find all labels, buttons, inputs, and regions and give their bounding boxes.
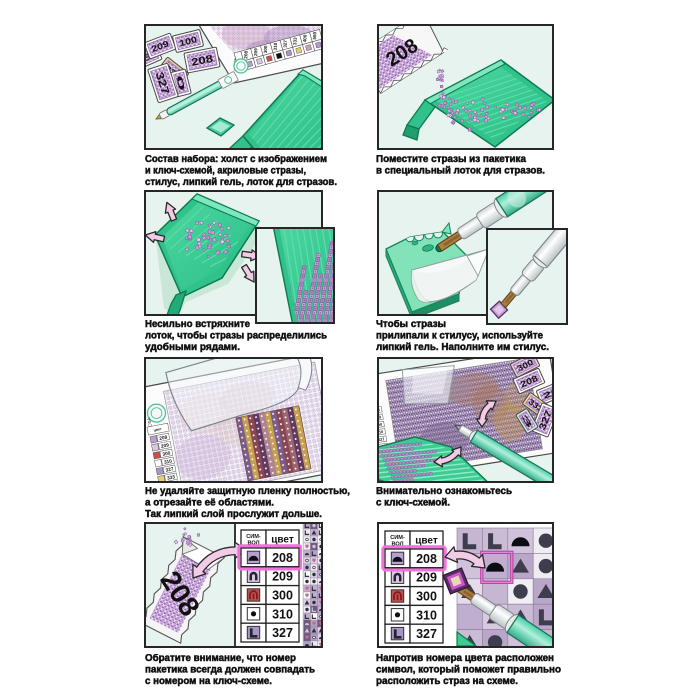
svg-text:Поместите стразы из пакетика: Поместите стразы из пакетика [376,155,527,165]
svg-text:символ, который поможет правил: символ, который поможет правильно [376,664,561,675]
svg-text:300: 300 [416,590,437,604]
svg-text:Обратите внимание, что номер: Обратите внимание, что номер [145,654,296,664]
svg-text:208: 208 [416,552,437,566]
svg-text:300: 300 [263,45,268,53]
svg-text:стилус, липкий гель, лоток для: стилус, липкий гель, лоток для стразов. [145,177,337,188]
svg-text:с номером на ключ-схеме.: с номером на ключ-схеме. [145,676,272,687]
svg-text:лоток, чтобы стразы распредели: лоток, чтобы стразы распределились [145,331,327,342]
svg-text:СИМ-: СИМ- [390,535,405,541]
svg-text:400: 400 [302,34,307,42]
svg-text:с ключ-схемой.: с ключ-схемой. [376,498,450,509]
svg-text:209: 209 [416,571,437,585]
svg-text:цвет: цвет [271,534,294,545]
svg-text:Состав набора: холст с изображ: Состав набора: холст с изображением [145,155,327,165]
svg-text:300: 300 [272,589,293,603]
svg-text:310: 310 [273,42,278,50]
svg-text:Не удаляйте защитную пленку по: Не удаляйте защитную пленку полностью, [145,487,350,497]
svg-text:прилипали к стилусу, используй: прилипали к стилусу, используйте [376,331,544,342]
svg-text:208: 208 [243,50,248,58]
svg-text:СИМ-: СИМ- [246,534,261,540]
svg-text:пакетика всегда должен совпада: пакетика всегда должен совпадать [145,664,315,675]
svg-text:310: 310 [272,607,293,621]
svg-text:Чтобы стразы: Чтобы стразы [376,320,446,330]
svg-text:209: 209 [272,570,293,584]
svg-text:550: 550 [312,31,317,39]
svg-text:в специальный лоток для стразо: в специальный лоток для стразов. [376,165,545,176]
svg-text:липкий гель. Наполните им стил: липкий гель. Наполните им стилус. [376,342,549,353]
svg-text:и ключ-схемой, акриловые страз: и ключ-схемой, акриловые стразы, [145,165,306,176]
svg-text:а отрезайте её областями.: а отрезайте её областями. [145,498,274,509]
svg-text:Внимательно ознакомьтесь: Внимательно ознакомьтесь [376,487,512,497]
svg-text:327: 327 [272,626,293,640]
svg-text:расположить страз на схеме.: расположить страз на схеме. [376,676,518,687]
svg-text:Так липкий слой прослужит доль: Так липкий слой прослужит дольше. [145,509,322,520]
svg-text:327: 327 [416,627,437,641]
svg-text:209: 209 [253,48,258,56]
svg-text:цвет: цвет [415,535,438,546]
svg-text:310: 310 [416,608,437,622]
svg-text:Несильно встряхните: Несильно встряхните [145,320,251,330]
svg-text:327: 327 [283,40,288,48]
svg-text:333: 333 [292,37,297,45]
svg-text:Напротив номера цвета располож: Напротив номера цвета расположен [376,654,554,664]
svg-text:208: 208 [272,551,293,565]
svg-text:удобными рядами.: удобными рядами. [145,342,240,353]
